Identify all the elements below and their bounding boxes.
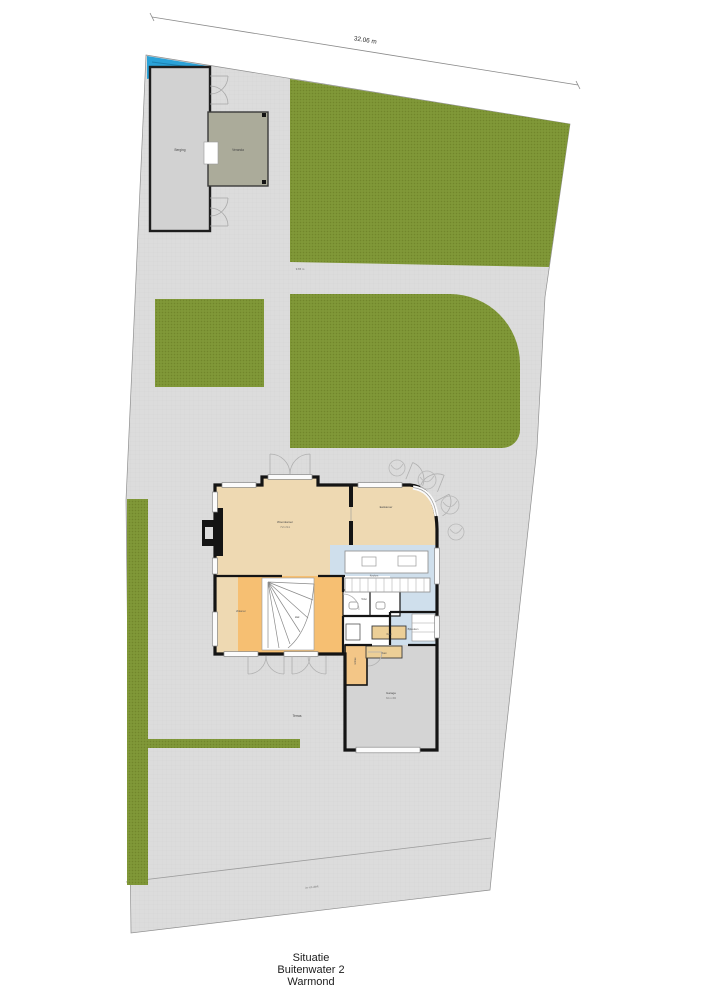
kitchen-counter <box>345 578 430 592</box>
address: Buitenwater 2 <box>277 964 344 976</box>
eetkamer-label: Eetkamer <box>380 505 393 509</box>
garage-dims: 6.1 x 3.6 <box>386 697 396 700</box>
window <box>435 616 440 638</box>
garden-depth-dimension: 9.65 m <box>296 267 305 271</box>
window <box>212 612 217 646</box>
entree-label: Entree <box>354 657 357 665</box>
garage-label: Garage <box>386 691 396 695</box>
woonkamer-dims: 7.2 x 9.1 <box>280 526 290 529</box>
kitchen-island <box>345 551 428 573</box>
veranda-post <box>262 113 266 117</box>
window <box>212 492 217 512</box>
bijkeuken-label: Bijkeuken <box>408 628 419 631</box>
title-block: Situatie Buitenwater 2 Warmond <box>277 952 344 988</box>
city: Warmond <box>287 976 334 988</box>
window <box>435 548 440 584</box>
plot-width-dimension: 32.06 m <box>353 35 377 46</box>
drawing-type: Situatie <box>293 952 330 964</box>
toilet-fixture-icon <box>349 602 358 609</box>
zitkamer-label: Zitkamer <box>236 610 246 613</box>
veranda-post <box>262 180 266 184</box>
spiral-staircase <box>262 578 314 650</box>
window <box>224 652 258 657</box>
hal-label: Hal <box>295 615 300 619</box>
window <box>358 483 402 488</box>
lawn-top <box>290 79 570 267</box>
kast2-label: Kast <box>382 652 387 655</box>
shed-label: Berging <box>175 148 186 152</box>
keuken-label: Keuken <box>370 575 379 578</box>
wall-serre-divider <box>349 485 353 507</box>
toilet-label: Toilet <box>361 598 367 601</box>
kast1-label: Kast <box>387 633 392 636</box>
door-opening <box>284 652 318 657</box>
lawn-middle <box>290 294 520 448</box>
window <box>212 558 217 574</box>
hedge-left <box>127 499 148 885</box>
toilet-fixture-icon <box>376 602 385 609</box>
garage-door <box>356 747 420 753</box>
veranda-opening <box>204 142 218 164</box>
woonkamer-label: Woonkamer <box>277 520 293 524</box>
window-bay <box>268 475 312 480</box>
window <box>222 483 256 488</box>
lawn-left <box>155 299 264 387</box>
situation-plan-page: Berging Veranda 32.06 m 9.65 m in- en ui… <box>0 0 707 1000</box>
wall-serre-divider <box>349 521 353 545</box>
site-plan-drawing: Berging Veranda 32.06 m 9.65 m in- en ui… <box>0 0 707 1000</box>
hedge-horizontal <box>148 739 300 748</box>
cabinet <box>346 624 360 640</box>
terrace-label: Terras <box>293 714 302 718</box>
veranda-label: Veranda <box>232 148 244 152</box>
